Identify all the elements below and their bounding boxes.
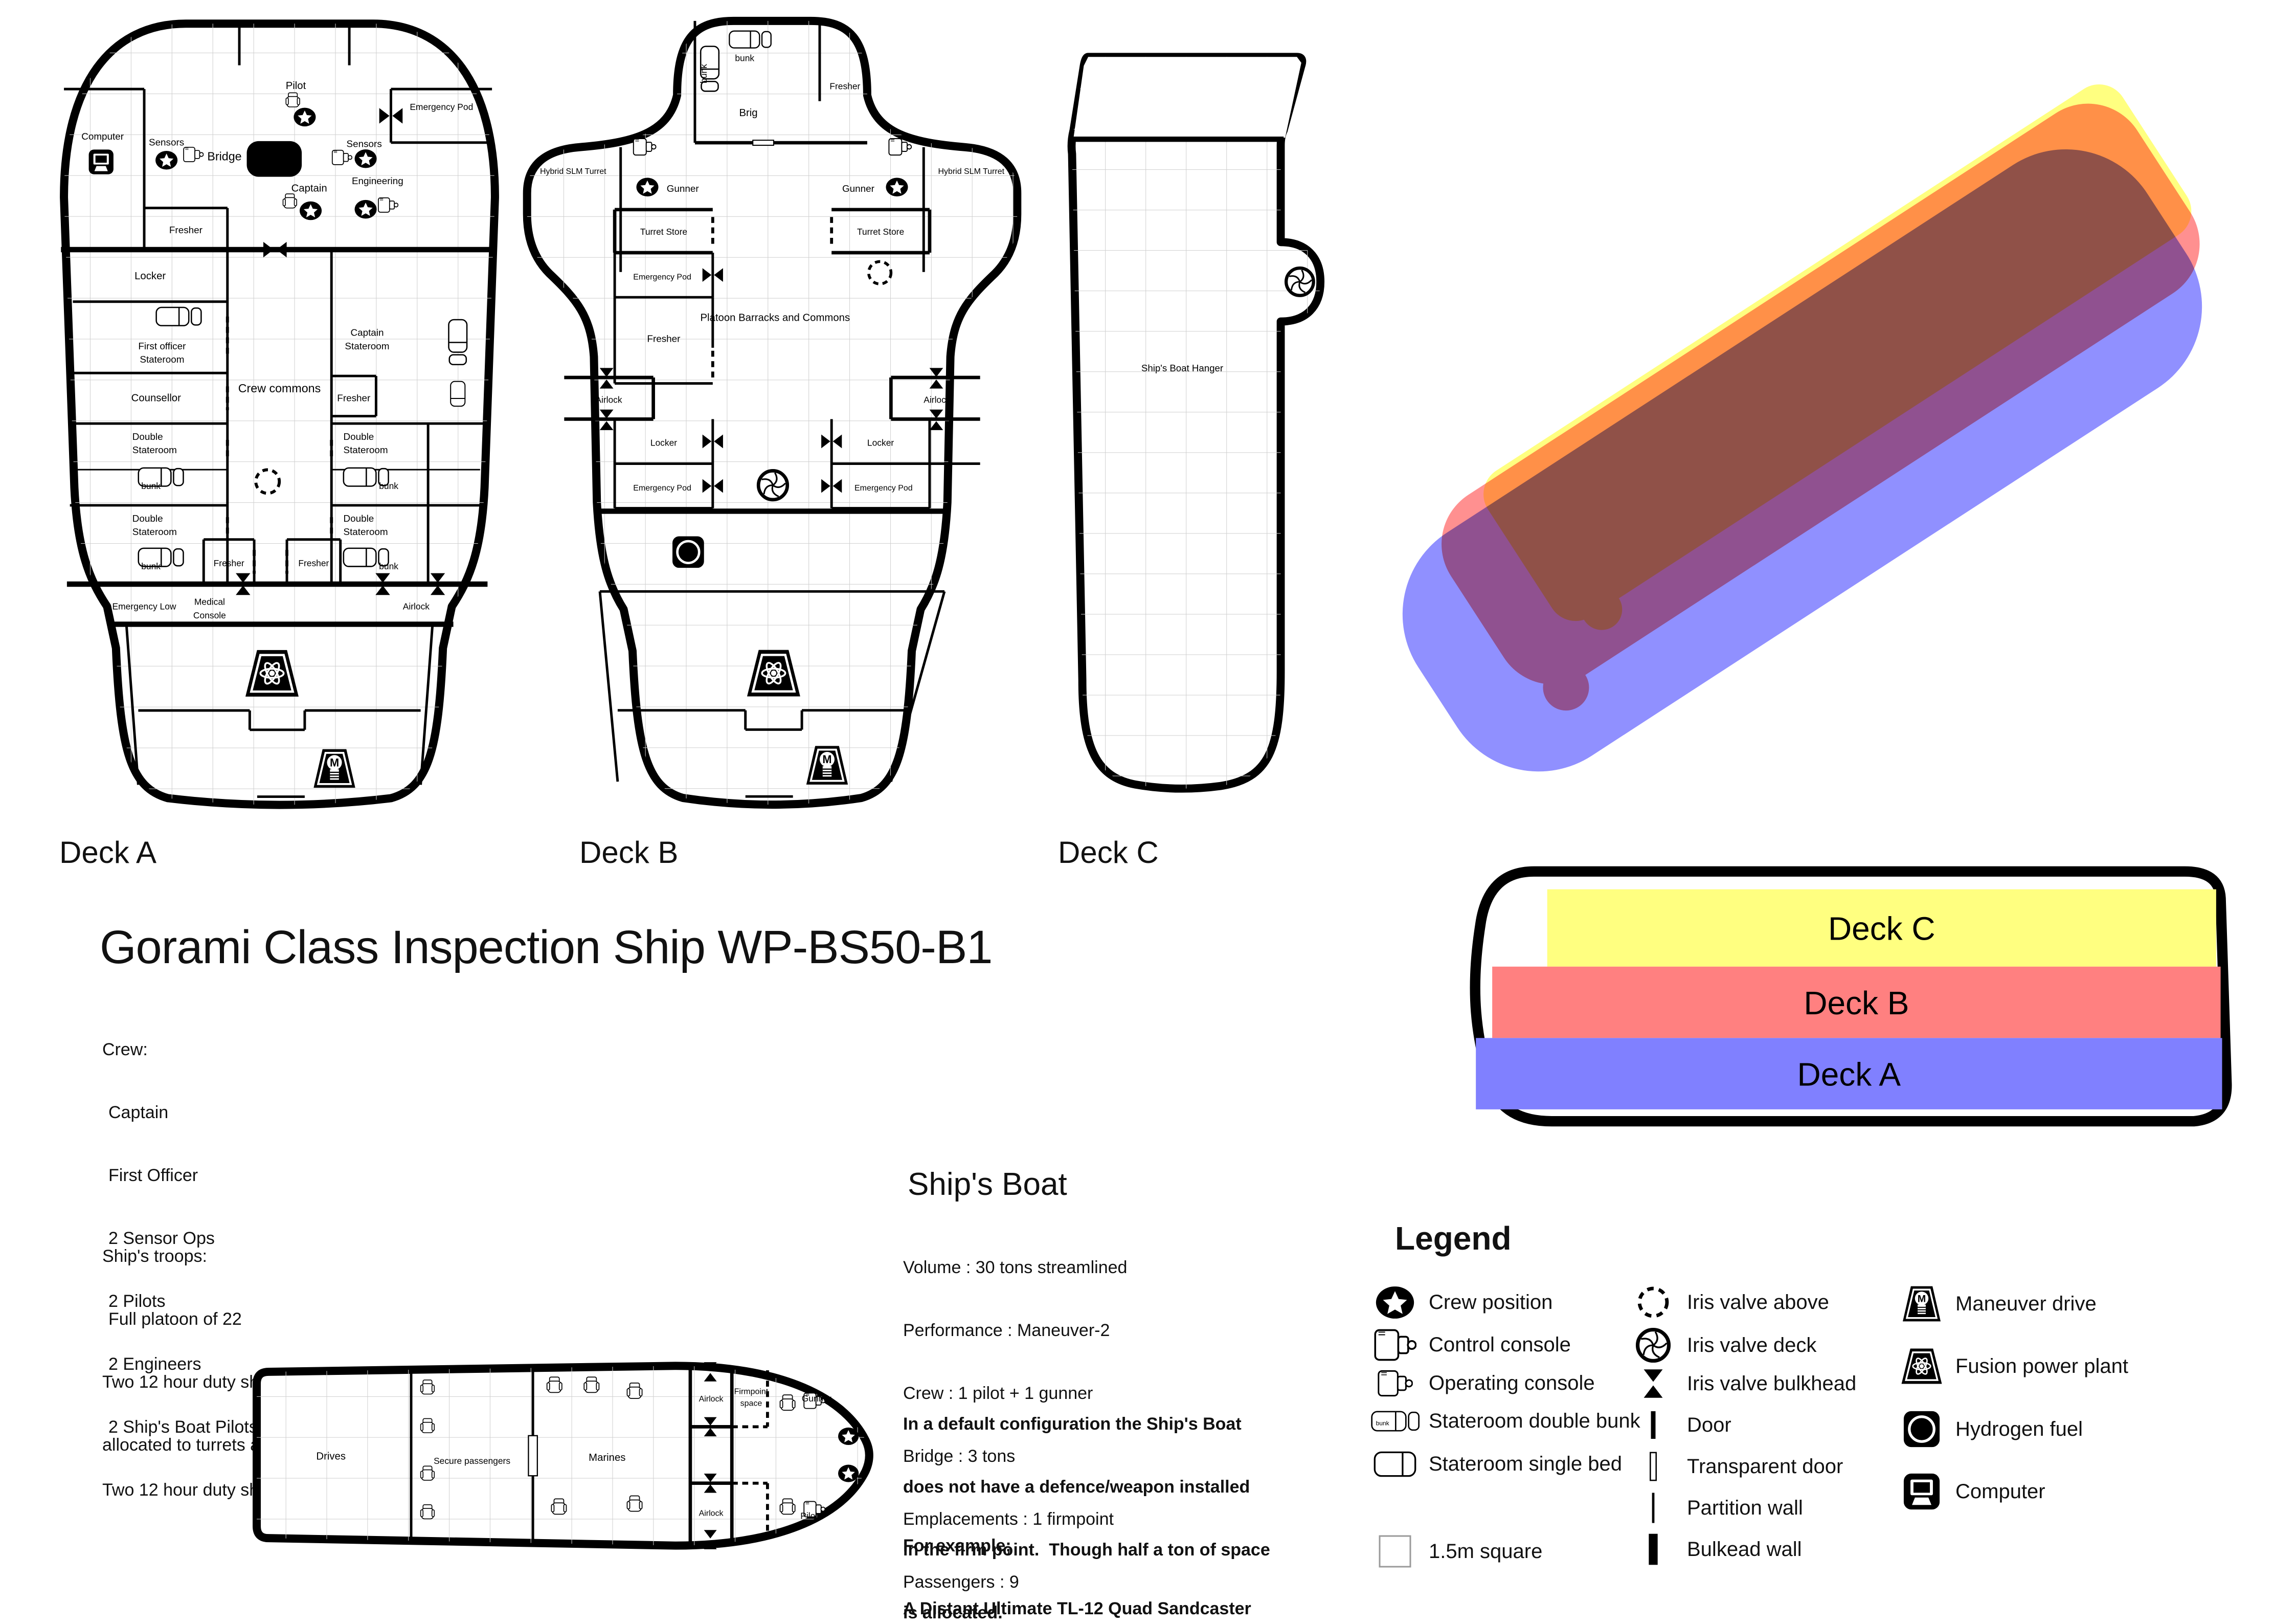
room-label: Console [193, 610, 226, 620]
room-label: Engineering [352, 176, 403, 187]
legend-label: Bulkead wall [1687, 1538, 1802, 1561]
legend-row: Control console [1370, 1327, 1571, 1363]
crew-position-icon [838, 1428, 859, 1445]
room-label: Stateroom [132, 445, 177, 456]
room-label: Turret Store [640, 227, 687, 237]
bulkhead-wall-icon [1629, 1532, 1678, 1566]
stateroom-single-bed-icon [451, 382, 465, 406]
room-label: Emergency Pod [410, 102, 473, 112]
legend-label: 1.5m square [1429, 1540, 1542, 1563]
crew-position-icon [636, 178, 658, 196]
operating-console-icon [1370, 1368, 1420, 1398]
pilot-seat-icon [780, 1499, 795, 1514]
room-label: Fresher [169, 225, 202, 236]
room-label: Stateroom [343, 445, 388, 456]
deck-c-band-label: Deck C [1828, 910, 1935, 947]
room-label: Emergency Pod [633, 273, 691, 281]
para-line: For example; [903, 1536, 1320, 1556]
legend-label: Iris valve deck [1687, 1334, 1816, 1357]
crew-position-icon [355, 149, 377, 168]
room-label: Gunner [842, 184, 874, 194]
room-label: Fresher [829, 81, 860, 91]
stateroom-double-bunk-icon [729, 31, 771, 48]
room-label: Crew commons [238, 382, 321, 395]
deck-stack-side-view: Deck C Deck B Deck A [1462, 865, 2246, 1157]
crew-position-icon [294, 108, 316, 126]
page-title: Gorami Class Inspection Ship WP-BS50-B1 [100, 921, 992, 974]
legend-label: Transparent door [1687, 1455, 1843, 1478]
room-label: Locker [134, 271, 166, 282]
door-icon [1629, 1410, 1678, 1440]
transparent-door-icon [1629, 1451, 1678, 1482]
svg-text:bunk: bunk [1376, 1420, 1390, 1427]
ships-boat-plan: Drives Secure passengers Marines Airlock… [244, 1355, 887, 1556]
room-label: Brig [739, 107, 757, 119]
room-label: Double [132, 432, 163, 442]
door-icon [753, 140, 774, 145]
room-label: Airlock [924, 394, 951, 405]
legend-row: Iris valve bulkhead [1629, 1368, 1856, 1399]
troops-heading: Ship's troops: [102, 1246, 527, 1267]
legend-row: Fusion power plant [1897, 1347, 2128, 1385]
para-line: In a default configuration the Ship's Bo… [903, 1414, 1270, 1435]
stateroom-double-bunk-icon: bunk [1370, 1410, 1420, 1433]
computer-icon [89, 149, 114, 174]
room-label: bunk [735, 53, 754, 63]
legend-row: Operating console [1370, 1368, 1595, 1398]
iris-valve-deck-icon [758, 471, 787, 500]
room-label: Fresher [647, 333, 680, 344]
room-label: Double [343, 432, 374, 442]
room-label: Fresher [298, 558, 329, 568]
room-label: Emergency Pod [633, 484, 691, 493]
hydrogen-fuel-icon [672, 536, 704, 568]
room-label: Captain [291, 183, 327, 194]
captain-seat-icon [283, 194, 297, 208]
room-label: First officer [138, 341, 186, 352]
legend-label: Iris valve bulkhead [1687, 1372, 1856, 1395]
legend-row: Partition wall [1629, 1492, 1803, 1524]
deck-b-band-label: Deck B [1804, 985, 1909, 1021]
marine-seat-icon [627, 1496, 642, 1511]
nose-section [1073, 57, 1301, 138]
room-label: Turret Store [857, 227, 904, 237]
room-label: Pilot [800, 1510, 818, 1521]
crew-item: Captain [102, 1102, 471, 1123]
para-line: A Distant Ultimate TL-12 Quad Sandcaster [903, 1598, 1320, 1619]
room-label: Stateroom [132, 527, 177, 538]
iris-valve-bulkhead-icon [1629, 1368, 1678, 1399]
room-label: Counsellor [131, 392, 181, 404]
room-label: Platoon Barracks and Commons [700, 313, 850, 324]
hydrogen-fuel-icon [1897, 1410, 1946, 1449]
deck-a-plan: Sensors Bridge Pilot Emergency Pod Compu… [49, 12, 510, 822]
ships-boat-para2: For example; A Distant Ultimate TL-12 Qu… [903, 1494, 1320, 1624]
room-label: Airlock [595, 394, 622, 405]
legend-label: Fusion power plant [1955, 1355, 2128, 1378]
legend-label: Hydrogen fuel [1955, 1418, 2083, 1441]
legend-row: Transparent door [1629, 1451, 1843, 1482]
room-label: Airlock [403, 601, 430, 611]
room-label: Sensors [149, 138, 184, 148]
stat-line: Volume : 30 tons streamlined [903, 1257, 1127, 1278]
partition-wall-icon [1629, 1492, 1678, 1524]
room-label: Locker [867, 438, 894, 448]
room-label: bunk [379, 561, 398, 571]
troops-item: Full platoon of 22 [102, 1309, 527, 1330]
room-label: Emergency Pod [854, 484, 913, 493]
legend-heading: Legend [1395, 1219, 1512, 1257]
crew-position-icon [838, 1465, 859, 1482]
ships-boat-heading: Ship's Boat [908, 1166, 1067, 1203]
marine-seat-icon [584, 1377, 599, 1392]
stat-line: Performance : Maneuver-2 [903, 1320, 1127, 1341]
room-label: Bridge [207, 150, 241, 163]
room-label: Firmpoint [734, 1387, 769, 1396]
room-label: Gunner [802, 1393, 831, 1404]
room-label: Stateroom [140, 354, 184, 365]
passenger-seat-icon [421, 1418, 435, 1433]
stateroom-double-bunk-icon [448, 320, 467, 365]
gunner-seat-icon [780, 1395, 795, 1410]
room-label: Fresher [337, 393, 370, 404]
legend-label: Computer [1955, 1480, 2045, 1503]
passenger-seat-icon [421, 1505, 435, 1519]
room-label: bunk [141, 561, 161, 571]
computer-icon [1897, 1472, 1946, 1511]
room-label: Airlock [699, 1395, 724, 1404]
room-label: space [740, 1399, 762, 1408]
room-label: Emergency Low [112, 601, 176, 611]
deck-a-band-label: Deck A [1797, 1056, 1901, 1093]
room-label: Ship's Boat Hanger [1141, 363, 1223, 373]
stateroom-double-bunk-icon [156, 307, 201, 326]
room-label: Stateroom [343, 527, 388, 538]
marine-seat-icon [547, 1377, 562, 1392]
room-label: Hybrid SLM Turret [938, 167, 1004, 176]
ship-deck-plan-sheet: M H [0, 0, 2296, 1624]
legend-label: Control console [1429, 1333, 1571, 1356]
pilot-seat-icon [286, 93, 300, 107]
deck-b-caption: Deck B [579, 835, 678, 870]
deck-overlay-isometric [1350, 77, 2296, 813]
room-label: Stateroom [345, 341, 389, 352]
crew-position-icon [886, 178, 908, 196]
legend-label: Stateroom single bed [1429, 1453, 1622, 1476]
deck-a-caption: Deck A [59, 835, 156, 870]
legend-label: Partition wall [1687, 1497, 1803, 1520]
crew-heading: Crew: [102, 1039, 471, 1060]
marine-seat-icon [627, 1383, 642, 1398]
deck-c-caption: Deck C [1058, 835, 1159, 870]
iris-valve-above-icon [1629, 1285, 1678, 1320]
legend-row: Door [1629, 1410, 1731, 1440]
legend-row: bunk Stateroom double bunk [1370, 1410, 1640, 1433]
legend-row: Hydrogen fuel [1897, 1410, 2083, 1449]
legend-label: Maneuver drive [1955, 1293, 2097, 1316]
room-label: Double [132, 514, 163, 524]
legend-label: Door [1687, 1414, 1731, 1437]
room-label: Marines [589, 1452, 625, 1463]
crew-position-icon [355, 200, 377, 218]
room-label: bunk [699, 64, 709, 83]
legend-label: Stateroom double bunk [1429, 1410, 1640, 1433]
room-label: Drives [316, 1451, 346, 1462]
control-console-icon [1370, 1327, 1420, 1363]
crew-position-icon [1370, 1285, 1420, 1320]
grid-square-icon [1370, 1534, 1420, 1568]
legend-label: Crew position [1429, 1291, 1552, 1314]
iris-valve-deck-icon [1286, 268, 1313, 295]
crew-item: First Officer [102, 1165, 471, 1186]
passenger-seat-icon [421, 1380, 435, 1394]
legend-label: Operating console [1429, 1372, 1595, 1395]
room-label: Computer [81, 131, 124, 142]
legend-row: Maneuver drive [1897, 1285, 2097, 1323]
legend-row: Computer [1897, 1472, 2045, 1511]
legend-row: Bulkead wall [1629, 1532, 1802, 1566]
room-label: Plotting table [251, 155, 298, 164]
legend-row: Iris valve above [1629, 1285, 1829, 1320]
room-label: Airlock [699, 1509, 724, 1518]
room-label: Secure passengers [434, 1456, 510, 1466]
passenger-seat-icon [421, 1466, 435, 1480]
legend-row: 1.5m square [1370, 1534, 1542, 1568]
legend-row: Iris valve deck [1629, 1327, 1816, 1364]
room-label: Pilot [286, 80, 306, 92]
legend-row: Crew position [1370, 1285, 1552, 1320]
stateroom-single-bed-icon [1370, 1451, 1420, 1478]
room-label: Hybrid SLM Turret [540, 167, 606, 176]
room-label: Captain [350, 328, 384, 339]
maneuver-drive-icon [1897, 1285, 1946, 1323]
fusion-power-plant-icon [1897, 1347, 1946, 1385]
room-label: Locker [650, 438, 677, 448]
room-label: Medical [194, 597, 225, 607]
room-label: Double [343, 514, 374, 524]
transparent-door-icon [528, 1436, 537, 1476]
legend-label: Iris valve above [1687, 1291, 1829, 1314]
room-label: Fresher [214, 558, 244, 568]
crew-position-icon [155, 151, 177, 169]
room-label: bunk [141, 481, 161, 491]
iris-valve-deck-icon [1629, 1327, 1678, 1364]
deck-b-plan: bunk bunk Brig Fresher Hybrid SLM Turret… [523, 12, 1022, 822]
crew-position-icon [300, 202, 322, 220]
legend-row: Stateroom single bed [1370, 1451, 1622, 1478]
marine-seat-icon [551, 1499, 566, 1514]
room-label: bunk [379, 481, 398, 491]
room-label: Sensors [347, 139, 382, 149]
room-label: Gunner [667, 184, 699, 194]
deck-c-plan: Ship's Boat Hanger [1065, 48, 1347, 805]
